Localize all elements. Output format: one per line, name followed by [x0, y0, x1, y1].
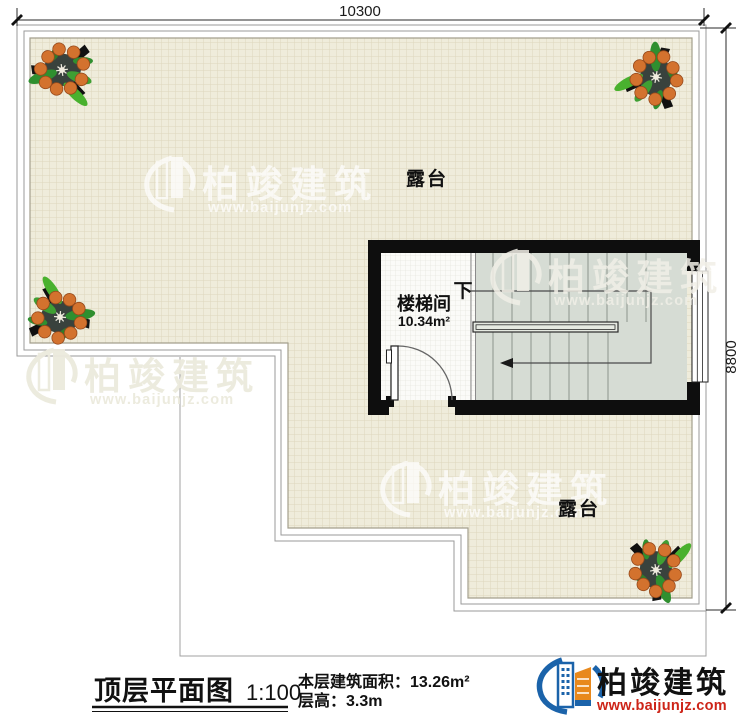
floor-area-text: 本层建筑面积：13.26m²: [298, 672, 470, 691]
label-stairwell: 楼梯间: [397, 293, 451, 314]
logo-icon: [539, 660, 603, 712]
wall-right-bottom: [687, 382, 700, 415]
dimension-right-value: 8800: [723, 340, 740, 373]
dimension-top-value: 10300: [339, 3, 381, 20]
floor-height-text: 层高：3.3m: [298, 691, 382, 710]
logo-url-text: www.baijunjz.com: [596, 698, 727, 714]
logo-brand-text: 柏竣建筑: [597, 666, 729, 700]
wall-top: [368, 240, 700, 253]
label-stair-down: 下: [453, 281, 472, 302]
label-stairwell-area: 10.34m²: [398, 313, 450, 329]
plan-scale: 1:100: [246, 680, 301, 705]
stair-handrail: [473, 322, 618, 332]
floor-plan-page: 柏竣建筑 www.baijunjz.com: [0, 0, 750, 727]
label-terrace-lower: 露台: [558, 497, 600, 520]
floor-plan-drawing: 柏竣建筑 www.baijunjz.com: [0, 0, 750, 727]
title-block: 顶层平面图 1:100 本层建筑面积：13.26m² 层高：3.3m: [92, 672, 470, 712]
dimension-top: 10300: [12, 3, 709, 26]
wall-bottom-right: [455, 400, 700, 415]
watermark-left: [29, 349, 260, 408]
company-logo: 柏竣建筑 www.baijunjz.com: [539, 660, 729, 714]
label-terrace-upper: 露台: [406, 167, 448, 190]
plan-title: 顶层平面图: [94, 676, 234, 706]
wall-left: [368, 240, 381, 415]
wall-bottom-left: [368, 400, 389, 415]
